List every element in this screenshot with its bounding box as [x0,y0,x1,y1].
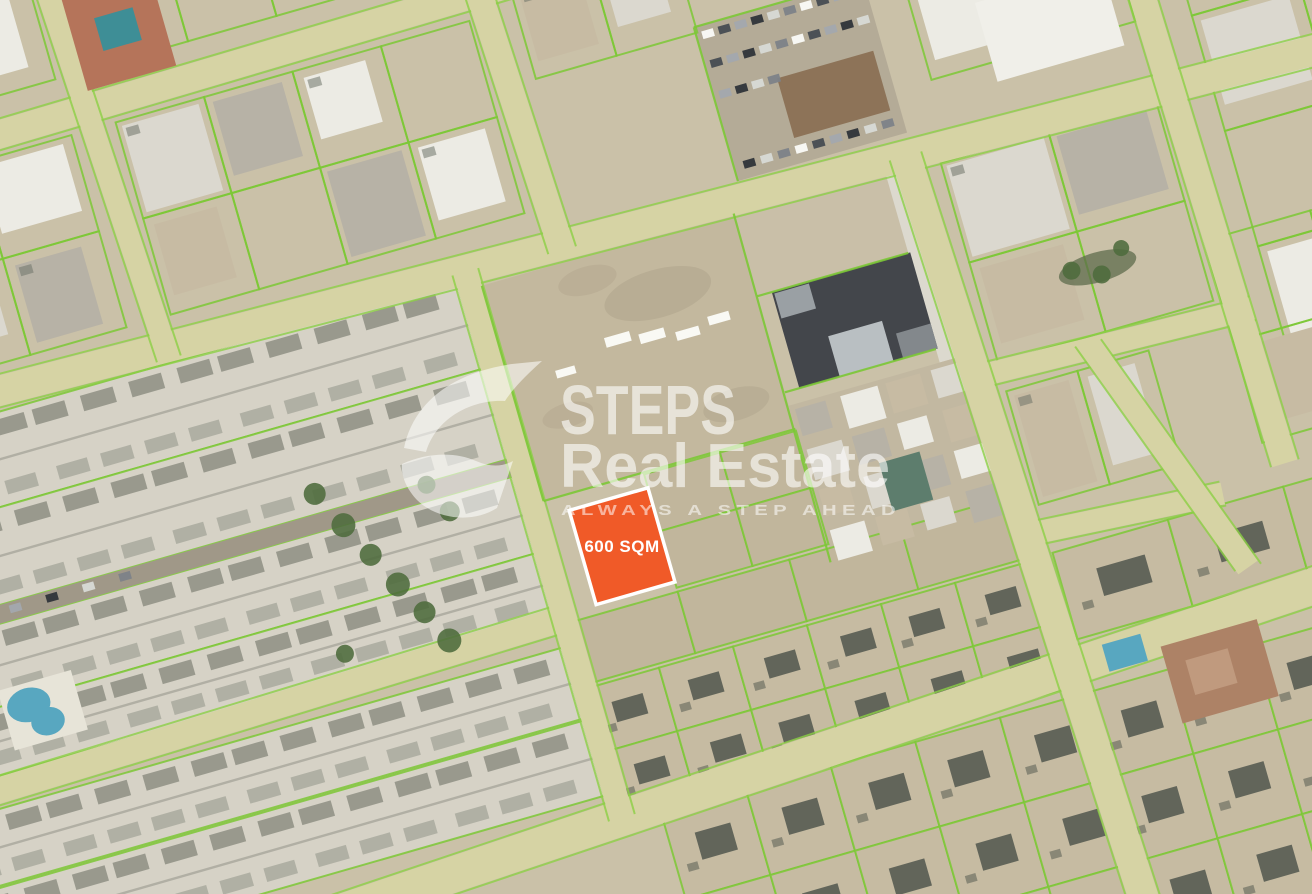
plot-area-label: 600 SQM [584,537,659,556]
brand-tagline: ALWAYS A STEP AHEAD [561,502,901,519]
listing-map-image: STEPS Real Estate ALWAYS A STEP AHEAD 60… [0,0,1312,894]
brand-name-bottom: Real Estate [560,432,890,501]
satellite-map: STEPS Real Estate ALWAYS A STEP AHEAD 60… [0,0,1312,894]
